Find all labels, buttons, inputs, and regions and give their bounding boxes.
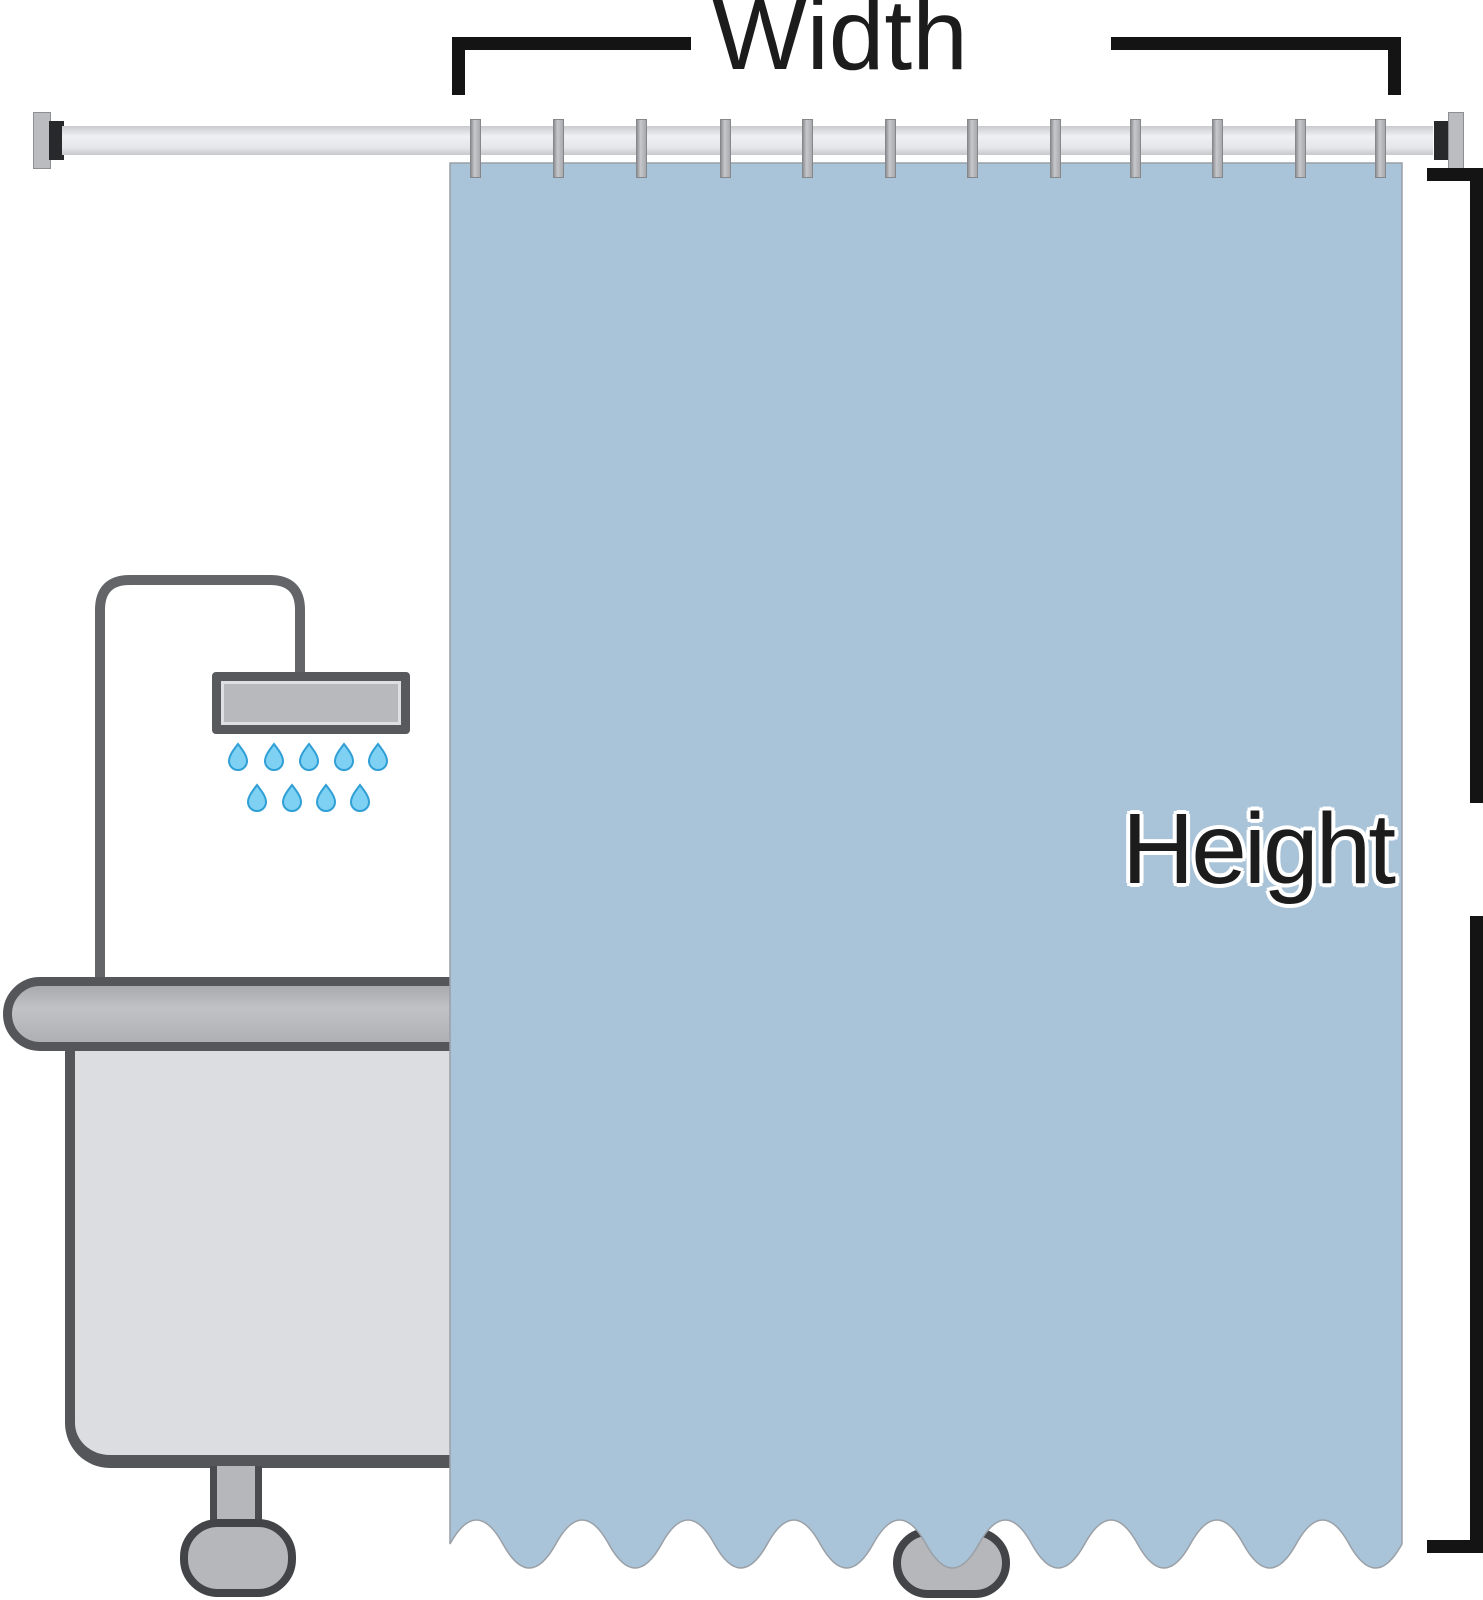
- shower-head-icon: [212, 672, 410, 734]
- water-drop-icon: [283, 785, 301, 811]
- height-label: Height: [1122, 799, 1393, 899]
- curtain-hook-icon: [885, 119, 896, 178]
- curtain-hook-icon: [1212, 119, 1223, 178]
- curtain-hook-icon: [967, 119, 978, 178]
- shower-curtain-size-diagram: Width Height: [0, 0, 1483, 1600]
- width-label: Width: [650, 0, 1030, 85]
- shower-pipe-path: [100, 580, 300, 980]
- bathtub-foot-left: [180, 1519, 296, 1597]
- water-drop-icon: [317, 785, 335, 811]
- height-bracket-line-lower: [1470, 916, 1483, 1553]
- curtain-rod: [62, 126, 1433, 155]
- height-bracket-line-upper: [1470, 168, 1483, 803]
- width-bracket-right-line: [1111, 37, 1401, 50]
- bathtub-rim: [3, 977, 500, 1051]
- water-drop-icon: [335, 744, 353, 770]
- height-bracket-bottom-tick: [1427, 1540, 1483, 1553]
- curtain-hook-icon: [802, 119, 813, 178]
- water-drop-icon: [369, 744, 387, 770]
- curtain-hook-icon: [470, 119, 481, 178]
- water-drop-icon: [248, 785, 266, 811]
- rod-wall-mount-right: [1448, 112, 1464, 169]
- bathtub-foot-right: [893, 1528, 1010, 1598]
- water-drop-icon: [351, 785, 369, 811]
- rod-end-cap-right: [1434, 121, 1449, 160]
- curtain-hook-icon: [553, 119, 564, 178]
- curtain-hook-icon: [720, 119, 731, 178]
- width-bracket-right-tick: [1388, 37, 1401, 95]
- bathtub-body: [65, 1051, 1030, 1468]
- curtain-hook-icon: [1375, 119, 1386, 178]
- water-drop-icon: [229, 744, 247, 770]
- curtain-hook-icon: [1130, 119, 1141, 178]
- water-drop-icon: [265, 744, 283, 770]
- bathtub-foot-stem: [210, 1466, 262, 1526]
- water-drop-icon: [300, 744, 318, 770]
- curtain-hook-icon: [1295, 119, 1306, 178]
- curtain-hook-icon: [1050, 119, 1061, 178]
- curtain-hook-icon: [636, 119, 647, 178]
